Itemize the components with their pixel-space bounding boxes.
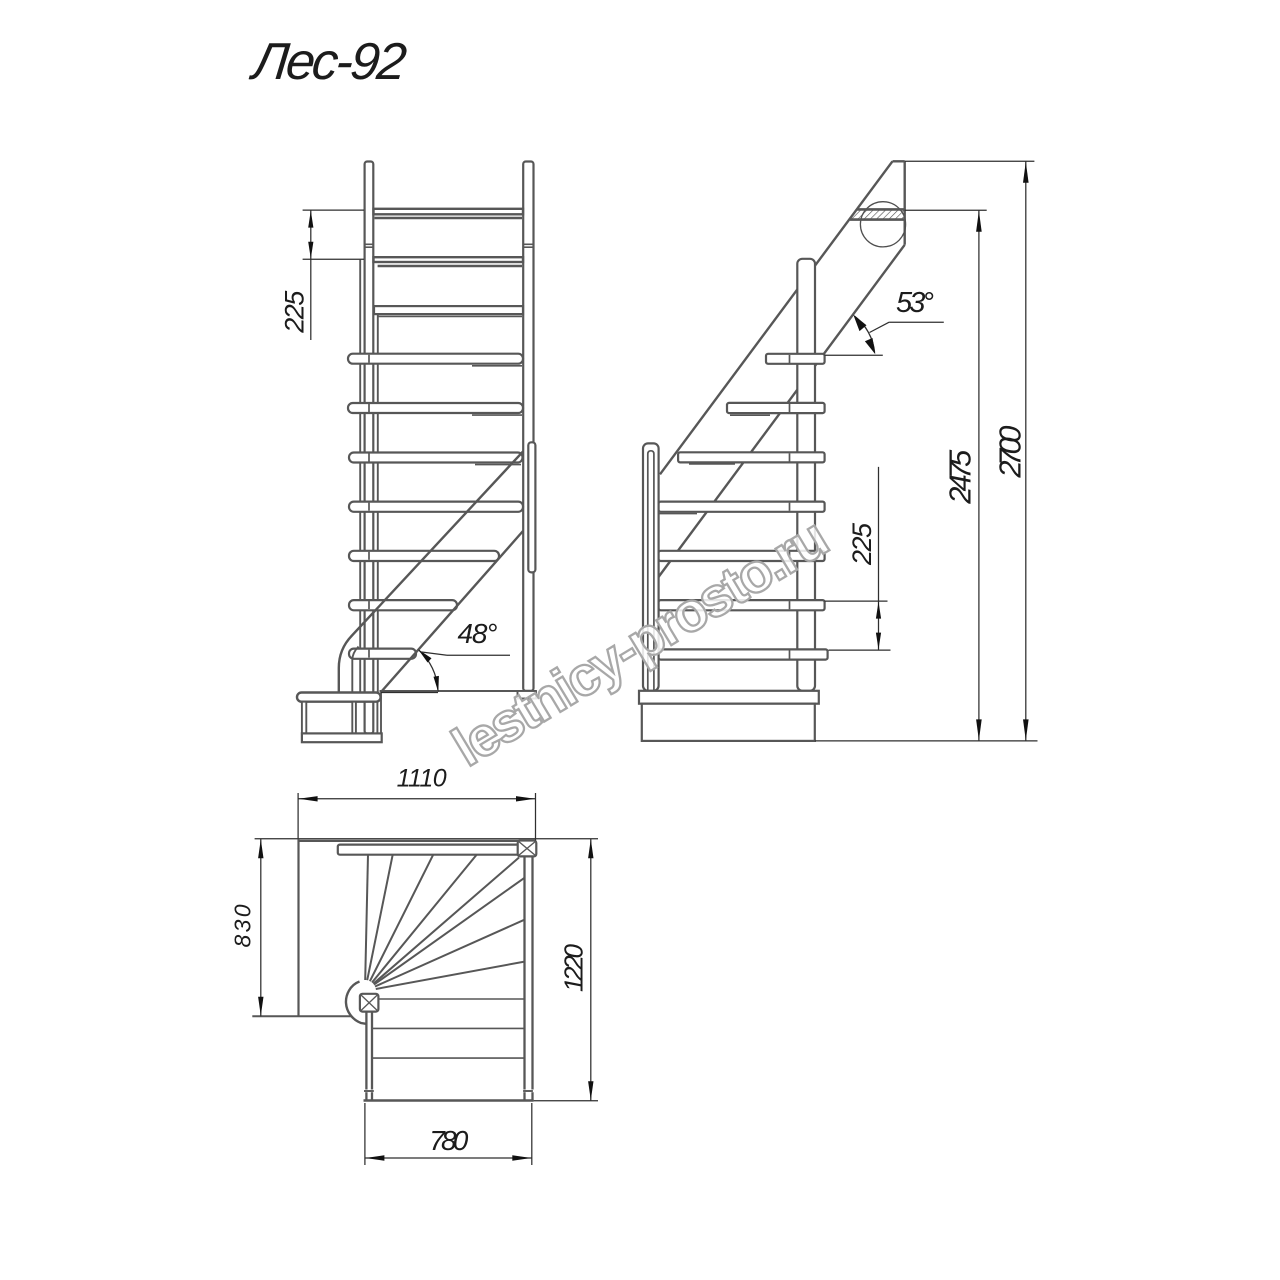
svg-text:830: 830 (230, 904, 256, 947)
svg-text:53°: 53° (896, 287, 934, 319)
svg-text:1110: 1110 (397, 765, 447, 793)
svg-text:2475: 2475 (943, 449, 978, 505)
svg-text:1220: 1220 (559, 943, 589, 992)
svg-text:Лес-92: Лес-92 (247, 33, 409, 91)
svg-text:2700: 2700 (993, 426, 1028, 479)
svg-text:225: 225 (280, 290, 310, 334)
svg-text:780: 780 (429, 1125, 468, 1156)
svg-text:225: 225 (847, 522, 877, 566)
svg-text:48°: 48° (458, 618, 498, 649)
